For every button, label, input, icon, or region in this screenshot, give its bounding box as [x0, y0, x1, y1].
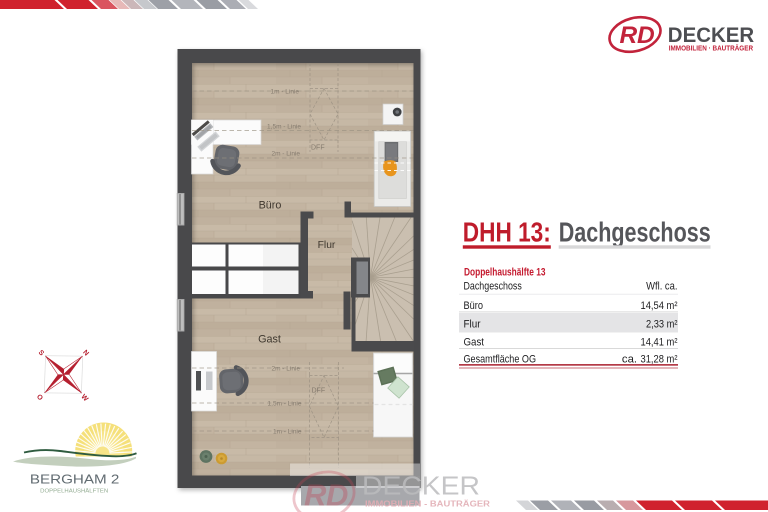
svg-text:2m - Linie: 2m - Linie — [271, 366, 300, 373]
svg-text:Doppelhaushälfte 13: Doppelhaushälfte 13 — [464, 266, 546, 278]
svg-text:Dachgeschoss: Dachgeschoss — [559, 216, 711, 248]
svg-text:DECKER: DECKER — [362, 473, 480, 501]
svg-text:S: S — [37, 349, 46, 357]
svg-text:Flur: Flur — [318, 240, 336, 251]
svg-text:BERGHAM 2: BERGHAM 2 — [30, 472, 120, 487]
svg-text:14,54 m²: 14,54 m² — [641, 300, 678, 312]
svg-text:D: D — [637, 22, 655, 49]
svg-text:2m - Linie: 2m - Linie — [271, 151, 300, 158]
svg-text:DFF: DFF — [311, 145, 325, 152]
svg-text:W: W — [79, 393, 89, 403]
svg-text:1m - Linie: 1m - Linie — [270, 89, 299, 96]
svg-text:DHH 13:: DHH 13: — [463, 216, 551, 248]
svg-text:R: R — [304, 478, 327, 512]
svg-text:DFF: DFF — [312, 388, 326, 395]
svg-text:Gast: Gast — [258, 334, 281, 346]
svg-text:Dachgeschoss: Dachgeschoss — [464, 281, 523, 293]
svg-text:R: R — [620, 22, 638, 49]
svg-text:Gesamtfläche OG: Gesamtfläche OG — [464, 354, 537, 366]
svg-text:D: D — [326, 478, 348, 512]
svg-text:DOPPELHAUSHÄLFTEN: DOPPELHAUSHÄLFTEN — [40, 488, 108, 495]
svg-text:14,41 m²: 14,41 m² — [641, 337, 678, 349]
svg-text:2,33 m²: 2,33 m² — [646, 319, 678, 331]
svg-text:Wfl. ca.: Wfl. ca. — [646, 281, 677, 293]
svg-text:Büro: Büro — [259, 200, 282, 212]
svg-text:31,28 m²: 31,28 m² — [641, 354, 678, 366]
svg-text:O: O — [35, 393, 44, 402]
svg-text:IMMOBILIEN - BAUTRÄGER: IMMOBILIEN - BAUTRÄGER — [365, 500, 490, 509]
svg-text:1m - Linie: 1m - Linie — [273, 429, 302, 436]
svg-text:Gast: Gast — [464, 337, 485, 349]
svg-text:ca.: ca. — [622, 354, 637, 366]
svg-text:1,5m - Linie: 1,5m - Linie — [267, 124, 301, 131]
svg-text:IMMOBILIEN · BAUTRÄGER: IMMOBILIEN · BAUTRÄGER — [669, 43, 754, 52]
svg-text:1,5m - Linie: 1,5m - Linie — [268, 401, 302, 408]
svg-text:Flur: Flur — [464, 319, 481, 331]
svg-text:Büro: Büro — [464, 300, 484, 312]
